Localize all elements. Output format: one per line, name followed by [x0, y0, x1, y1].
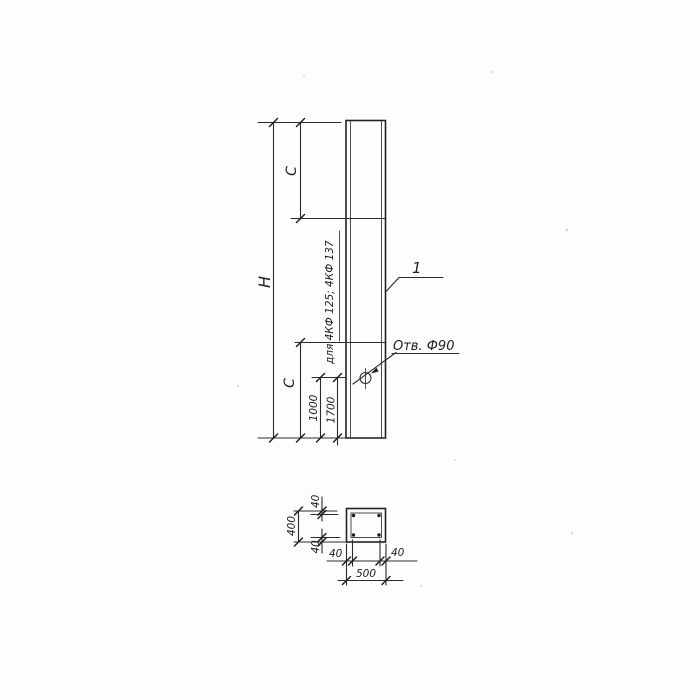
- section-outer-outline: [347, 509, 386, 543]
- part-number-label: 1: [412, 259, 422, 277]
- part-callout-leader: [387, 278, 400, 292]
- elevation-view: H C C 1000 1700 для 4КФ 125; 4КФ 137 Отв…: [255, 119, 459, 446]
- hole-offset-dim-1700-label: 1700: [326, 396, 338, 423]
- scan-specks: [237, 71, 573, 587]
- wall-bottom-dim-label: 40: [310, 540, 322, 554]
- wall-right-dim-label: 40: [391, 547, 405, 559]
- section-height-dim-label: 400: [286, 516, 298, 536]
- column-outline: [346, 121, 386, 439]
- technical-drawing-canvas: H C C 1000 1700 для 4КФ 125; 4КФ 137 Отв…: [0, 0, 700, 700]
- rebar-dot: [377, 514, 380, 517]
- section-inner-outline: [351, 513, 382, 538]
- rebar-dot: [352, 533, 355, 536]
- span-bottom-dim-label: C: [282, 378, 298, 388]
- hole-label: Отв. Ф90: [393, 339, 454, 354]
- rebar-dot: [352, 514, 355, 517]
- section-width-dim-label: 500: [356, 568, 376, 580]
- wall-left-dim-label: 40: [329, 548, 343, 560]
- variant-note-label: для 4КФ 125; 4КФ 137: [324, 240, 336, 365]
- height-dim-label: H: [255, 276, 274, 288]
- hole-leader-line: [353, 353, 396, 385]
- drawing-svg: H C C 1000 1700 для 4КФ 125; 4КФ 137 Отв…: [0, 0, 700, 700]
- span-top-dim-label: C: [284, 166, 300, 176]
- hole-offset-dim-1000-label: 1000: [308, 394, 320, 421]
- wall-top-dim-label: 40: [310, 494, 322, 508]
- rebar-dot: [377, 533, 380, 536]
- section-view: 400 40 40 40 40 500: [286, 494, 417, 585]
